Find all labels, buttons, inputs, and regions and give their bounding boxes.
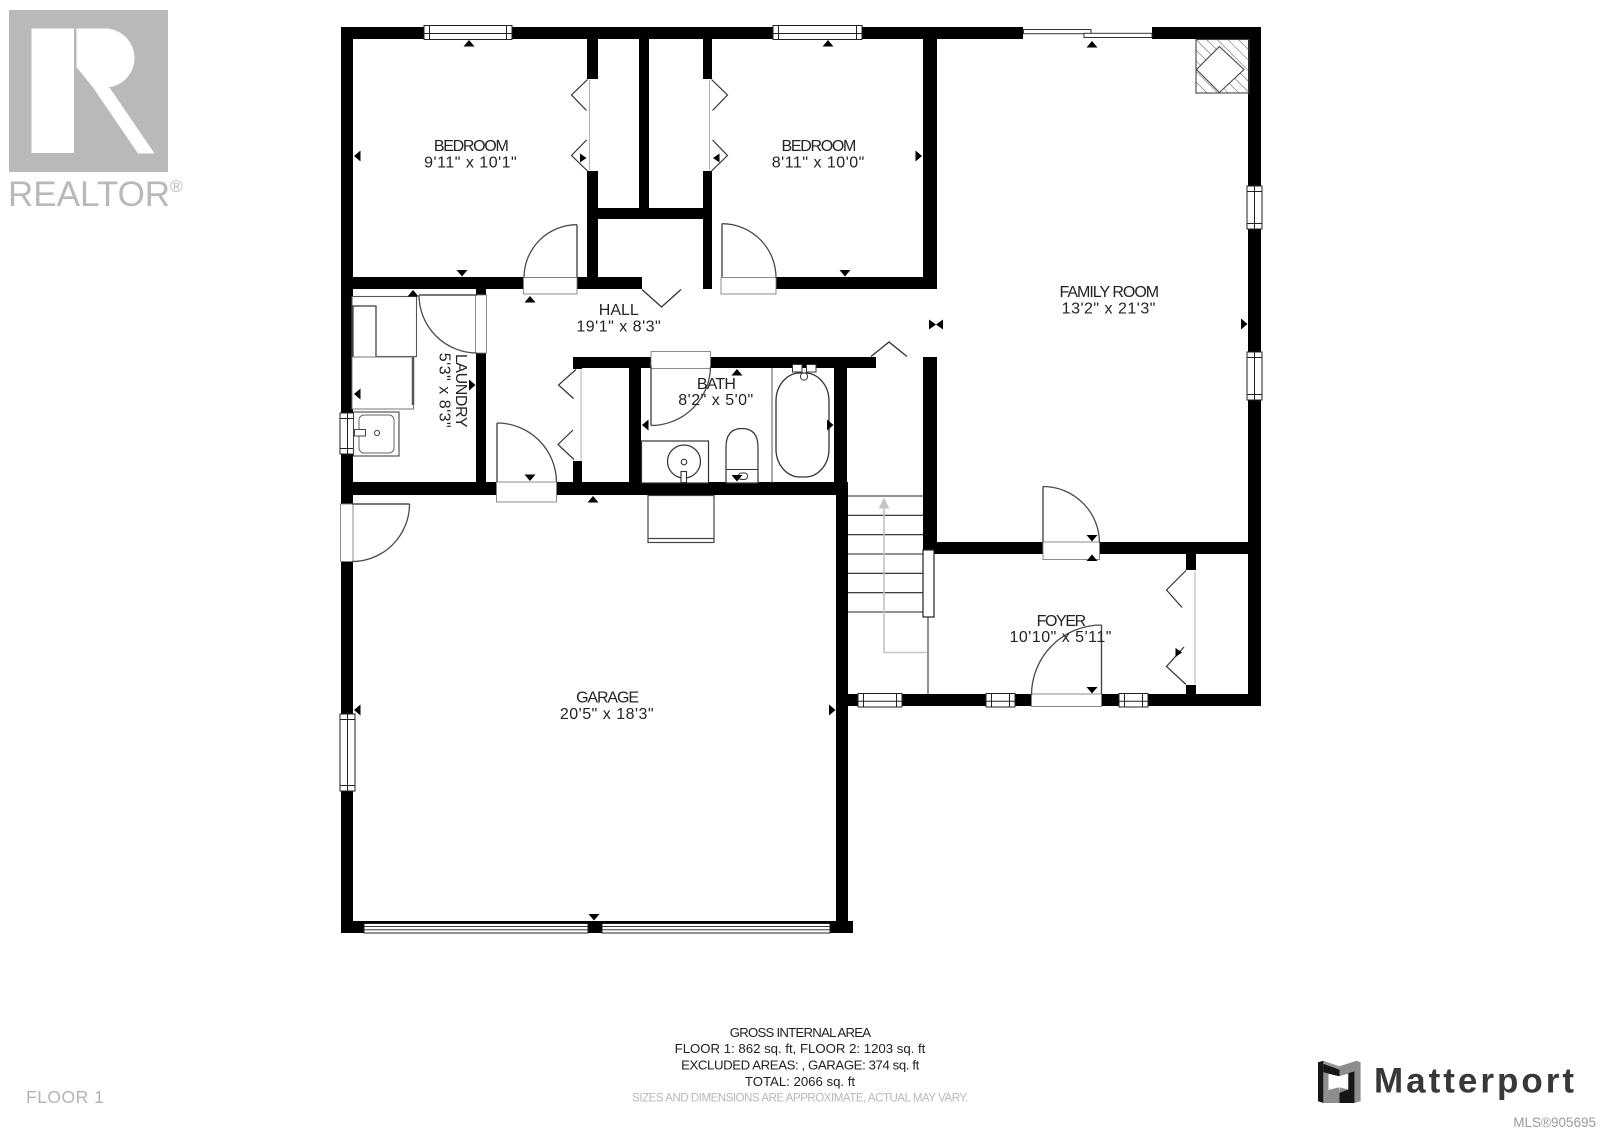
svg-text:13'2" x 21'3": 13'2" x 21'3" [1062, 300, 1156, 317]
svg-text:19'1" x 8'3": 19'1" x 8'3" [576, 318, 661, 335]
svg-text:HALL: HALL [599, 302, 639, 319]
svg-text:MLS®905695: MLS®905695 [1513, 1115, 1596, 1130]
svg-text:10'10" x 5'11": 10'10" x 5'11" [1009, 629, 1111, 646]
svg-text:9'11" x 10'1": 9'11" x 10'1" [424, 154, 517, 171]
svg-text:BEDROOM: BEDROOM [782, 138, 857, 155]
svg-text:5'3" x 8'3": 5'3" x 8'3" [436, 353, 453, 428]
svg-text:BEDROOM: BEDROOM [434, 138, 509, 155]
svg-text:EXCLUDED AREAS: , GARAGE: 374: EXCLUDED AREAS: , GARAGE: 374 sq. ft [681, 1058, 919, 1073]
svg-text:LAUNDRY: LAUNDRY [452, 354, 469, 428]
svg-text:SIZES AND DIMENSIONS ARE APPRO: SIZES AND DIMENSIONS ARE APPROXIMATE, AC… [632, 1092, 968, 1104]
svg-text:BATH: BATH [697, 376, 736, 393]
svg-text:20'5" x 18'3": 20'5" x 18'3" [560, 706, 654, 723]
svg-text:FLOOR 1: 862 sq. ft, FLOOR 2:: FLOOR 1: 862 sq. ft, FLOOR 2: 1203 sq. f… [675, 1041, 926, 1056]
svg-text:Matterport: Matterport [1374, 1062, 1577, 1101]
svg-text:8'11" x 10'0": 8'11" x 10'0" [772, 154, 865, 171]
svg-text:TOTAL: 2066 sq. ft: TOTAL: 2066 sq. ft [745, 1074, 856, 1089]
svg-text:FOYER: FOYER [1037, 613, 1086, 630]
svg-text:REALTOR®: REALTOR® [8, 175, 183, 214]
svg-text:GROSS INTERNAL AREA: GROSS INTERNAL AREA [730, 1025, 872, 1040]
svg-text:FLOOR 1: FLOOR 1 [26, 1087, 104, 1107]
svg-text:FAMILY ROOM: FAMILY ROOM [1059, 284, 1158, 301]
svg-text:GARAGE: GARAGE [576, 690, 638, 707]
svg-text:8'2" x 5'0": 8'2" x 5'0" [678, 392, 753, 409]
